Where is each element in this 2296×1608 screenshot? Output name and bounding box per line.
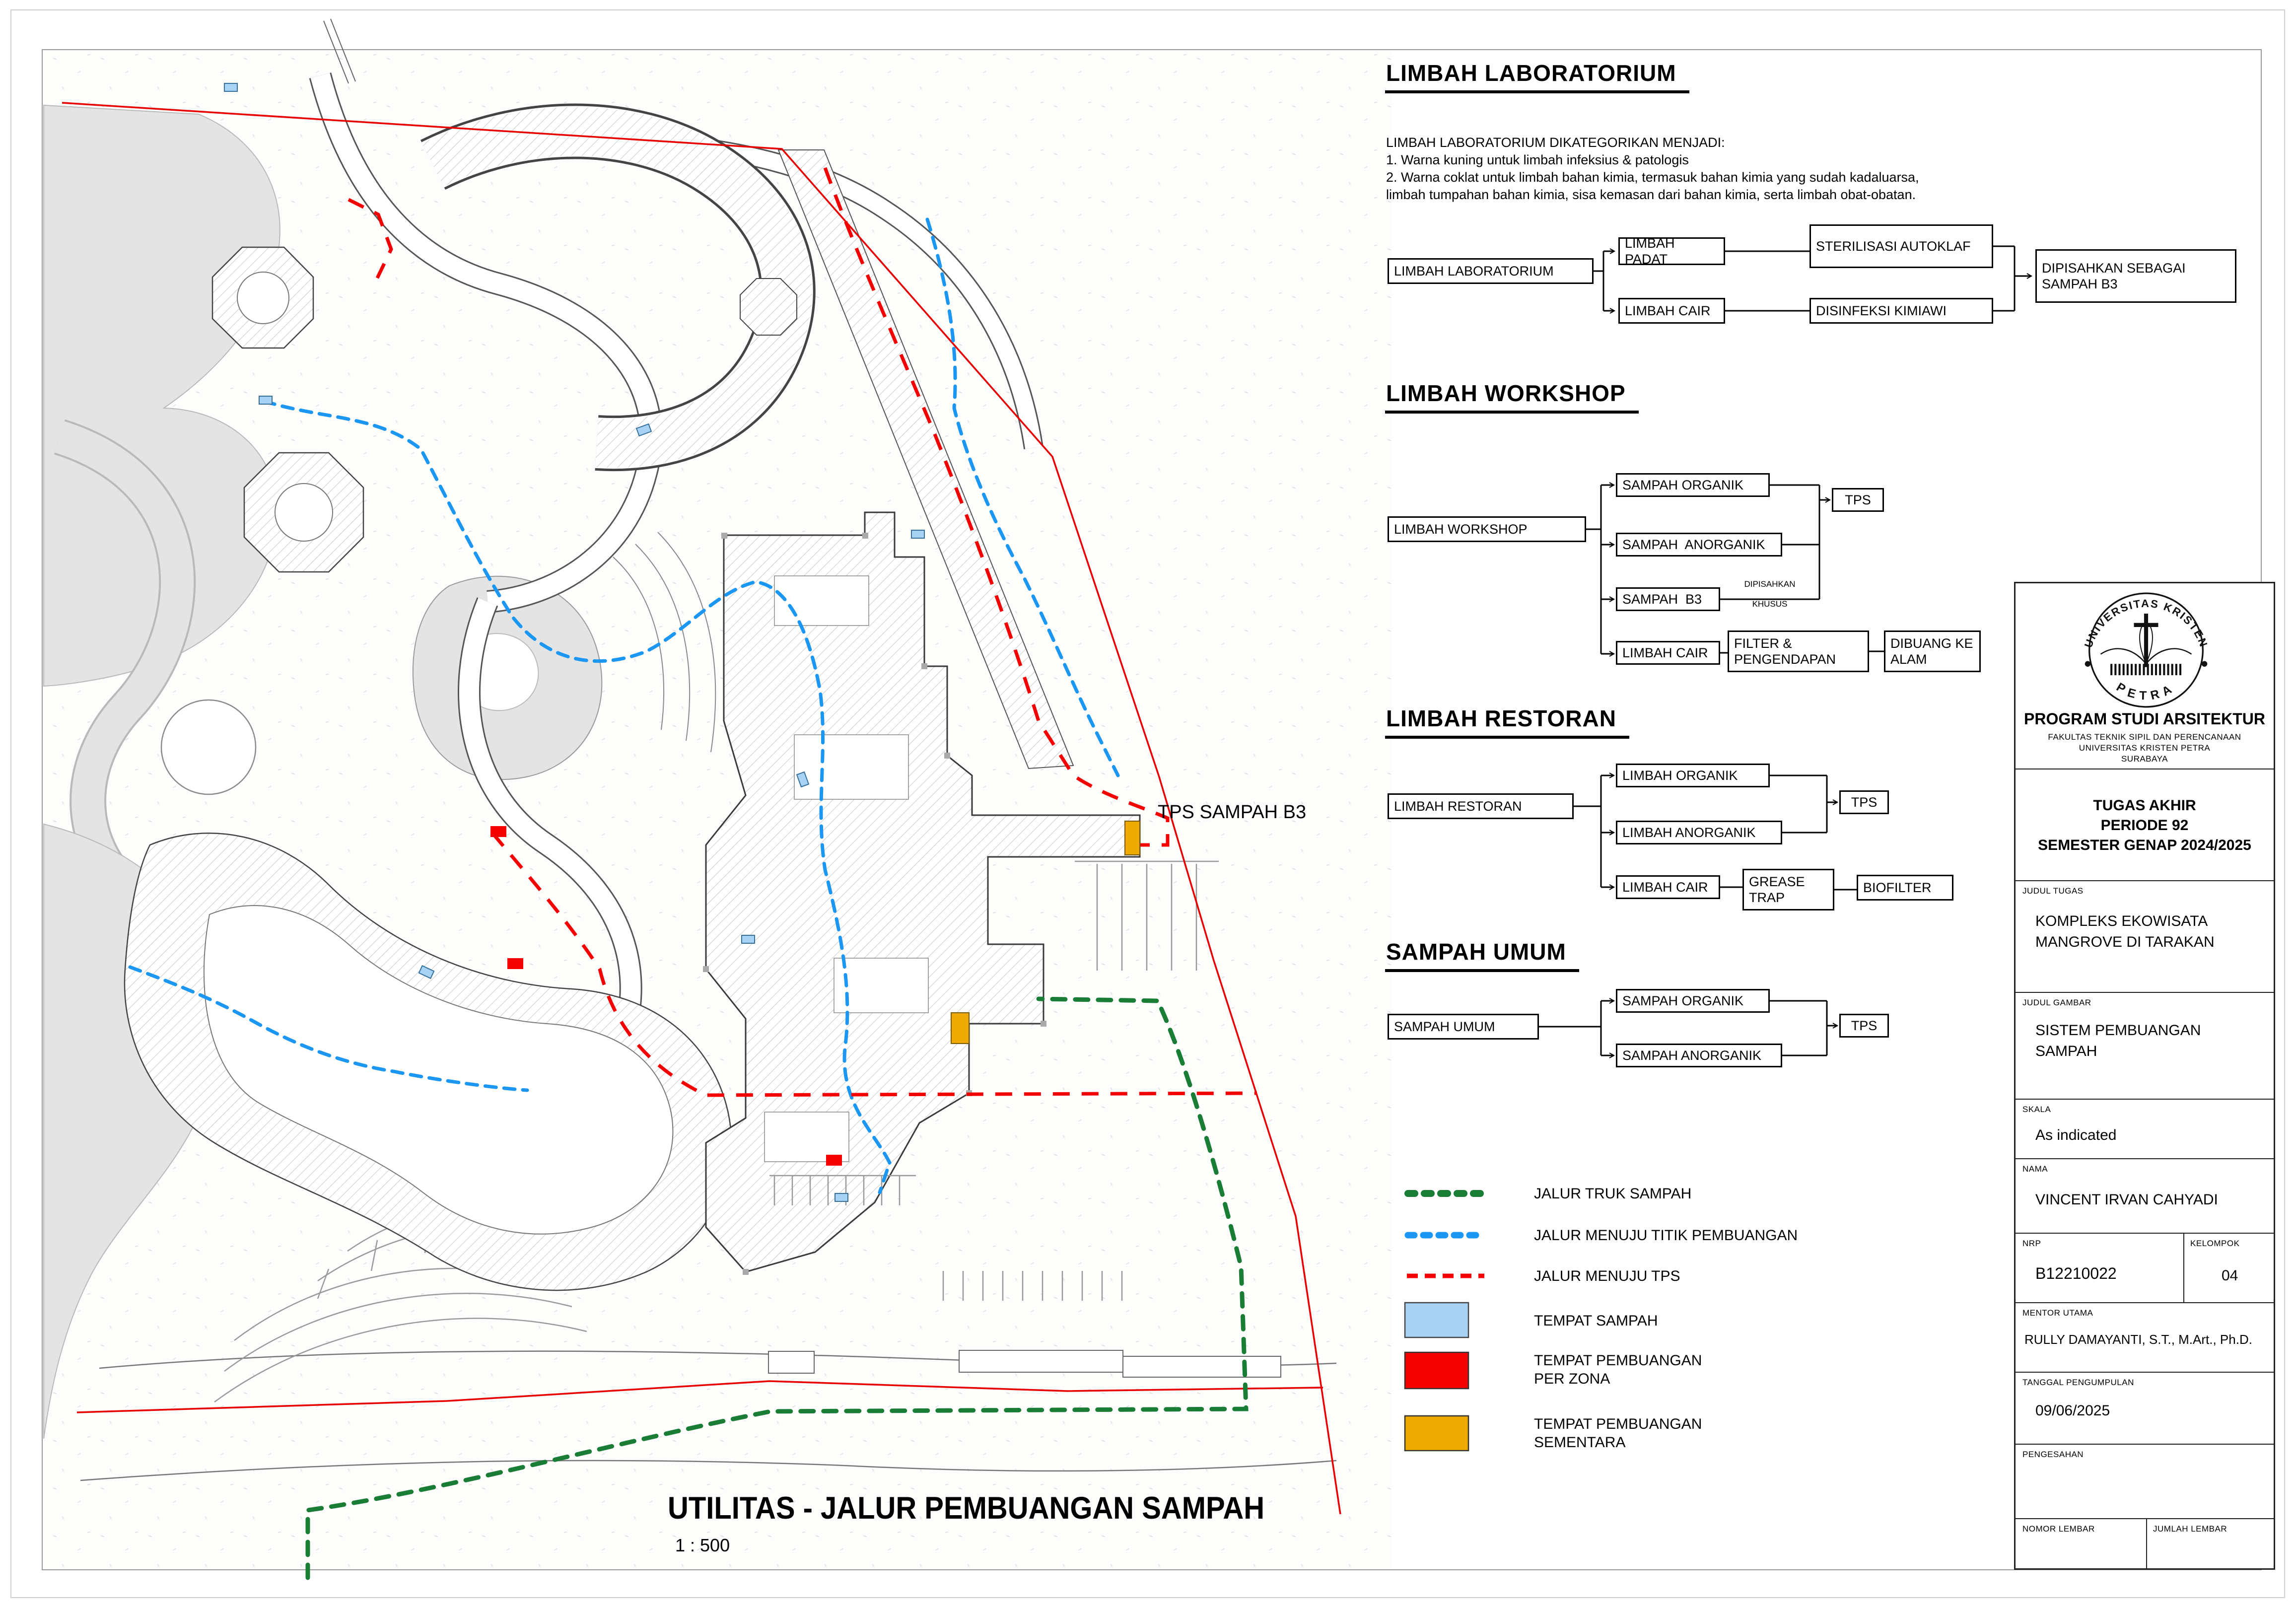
judul-tugas-label: JUDUL TUGAS bbox=[2022, 886, 2084, 896]
chart3-heading: LIMBAH RESTORAN bbox=[1385, 705, 1629, 739]
chart1-description: LIMBAH LABORATORIUM DIKATEGORIKAN MENJAD… bbox=[1386, 134, 2230, 204]
box-ws-tps: TPS bbox=[1832, 488, 1884, 512]
judul-gambar-label: JUDUL GAMBAR bbox=[2022, 998, 2091, 1008]
drawing-sheet: TPS SAMPAH B3 LIMBAH LABORATORIUM LIMBAH… bbox=[0, 0, 2296, 1608]
note-dipisahkan-khusus: DIPISAHKAN KHUSUS bbox=[1728, 574, 1812, 614]
chart2-heading: LIMBAH WORKSHOP bbox=[1385, 380, 1639, 414]
box-limbah-cair: LIMBAH CAIR bbox=[1618, 298, 1725, 324]
truck-route-swatch bbox=[1404, 1189, 1488, 1198]
project-title: TUGAS AKHIR PERIODE 92 SEMESTER GENAP 20… bbox=[2016, 796, 2274, 855]
per-zona-swatch bbox=[1404, 1351, 1470, 1390]
legend-label: JALUR MENUJU TPS bbox=[1534, 1267, 1857, 1285]
nrp-kelompok-divider bbox=[2183, 1233, 2184, 1302]
svg-text:PETRA: PETRA bbox=[2114, 681, 2178, 703]
judul-tugas-value: KOMPLEKS EKOWISATA MANGROVE DI TARAKAN bbox=[2035, 911, 2215, 953]
box-rs-limbah-organik: LIMBAH ORGANIK bbox=[1616, 764, 1770, 787]
box-limbah-padat: LIMBAH PADAT bbox=[1618, 237, 1725, 265]
chart4-heading: SAMPAH UMUM bbox=[1385, 938, 1579, 972]
titik-route-swatch bbox=[1404, 1230, 1488, 1240]
program-title: PROGRAM STUDI ARSITEKTUR bbox=[2016, 710, 2274, 728]
nrp-label: NRP bbox=[2022, 1239, 2041, 1249]
box-limbah-workshop: LIMBAH WORKSHOP bbox=[1388, 516, 1586, 542]
legend-label: TEMPAT PEMBUANGAN SEMENTARA bbox=[1534, 1415, 1857, 1452]
box-ws-sampah-b3: SAMPAH B3 bbox=[1616, 587, 1720, 611]
tempat-sampah-swatch bbox=[1404, 1302, 1470, 1339]
box-sterilisasi-autoklaf: STERILISASI AUTOKLAF bbox=[1809, 224, 1993, 268]
box-rs-limbah-anorganik: LIMBAH ANORGANIK bbox=[1616, 821, 1782, 844]
kelompok-value: 04 bbox=[2222, 1267, 2238, 1284]
petra-logo: UNIVERSITAS KRISTEN PETRA bbox=[2062, 589, 2230, 711]
box-grease-trap: GREASE TRAP bbox=[1742, 869, 1834, 910]
logo-bottom-text: PETRA bbox=[2114, 681, 2178, 703]
university-line: UNIVERSITAS KRISTEN PETRA bbox=[2016, 743, 2274, 753]
lembar-divider bbox=[2146, 1518, 2147, 1570]
city-line: SURABAYA bbox=[2016, 754, 2274, 764]
box-su-tps: TPS bbox=[1839, 1014, 1889, 1038]
jumlah-lembar-label: JUMLAH LEMBAR bbox=[2153, 1524, 2227, 1534]
nomor-lembar-label: NOMOR LEMBAR bbox=[2022, 1524, 2095, 1534]
mentor-value: RULLY DAMAYANTI, S.T., M.Art., Ph.D. bbox=[2024, 1332, 2252, 1347]
faculty-line: FAKULTAS TEKNIK SIPIL DAN PERENCANAAN bbox=[2016, 732, 2274, 742]
box-rs-limbah-cair: LIMBAH CAIR bbox=[1616, 875, 1720, 899]
round-plaza bbox=[161, 700, 256, 794]
sementara-swatch bbox=[1404, 1415, 1470, 1453]
tanggal-label: TANGGAL PENGUMPULAN bbox=[2022, 1378, 2134, 1388]
box-su-sampah-anorganik: SAMPAH ANORGANIK bbox=[1616, 1044, 1782, 1067]
box-filter-pengendapan: FILTER & PENGENDAPAN bbox=[1728, 630, 1869, 672]
legend-label: TEMPAT SAMPAH bbox=[1534, 1312, 1857, 1330]
nama-value: VINCENT IRVAN CAHYADI bbox=[2035, 1191, 2218, 1208]
nama-label: NAMA bbox=[2022, 1164, 2048, 1174]
box-ws-limbah-cair: LIMBAH CAIR bbox=[1616, 641, 1720, 665]
box-dibuang-ke-alam: DIBUANG KE ALAM bbox=[1884, 630, 1981, 672]
box-ws-sampah-anorganik: SAMPAH ANORGANIK bbox=[1616, 533, 1782, 557]
legend: JALUR TRUK SAMPAH JALUR MENUJU TITIK PEM… bbox=[1400, 1177, 1877, 1484]
mentor-label: MENTOR UTAMA bbox=[2022, 1308, 2093, 1318]
legend-label: JALUR MENUJU TITIK PEMBUANGAN bbox=[1534, 1226, 1857, 1245]
box-dipisahkan-b3: DIPISAHKAN SEBAGAI SAMPAH B3 bbox=[2035, 249, 2236, 303]
sheet-scale: 1 : 500 bbox=[675, 1535, 730, 1556]
kelompok-label: KELOMPOK bbox=[2190, 1239, 2239, 1249]
box-limbah-restoran: LIMBAH RESTORAN bbox=[1388, 793, 1574, 819]
box-ws-sampah-organik: SAMPAH ORGANIK bbox=[1616, 473, 1770, 497]
box-rs-tps: TPS bbox=[1839, 790, 1889, 814]
legend-label: JALUR TRUK SAMPAH bbox=[1534, 1185, 1857, 1203]
judul-gambar-value: SISTEM PEMBUANGAN SAMPAH bbox=[2035, 1020, 2201, 1062]
tps-label: TPS SAMPAH B3 bbox=[1158, 802, 1306, 823]
tanggal-value: 09/06/2025 bbox=[2035, 1402, 2110, 1419]
nrp-value: B12210022 bbox=[2035, 1264, 2117, 1283]
tps-route-swatch bbox=[1404, 1271, 1488, 1281]
box-sampah-umum: SAMPAH UMUM bbox=[1388, 1014, 1539, 1040]
chart1-heading: LIMBAH LABORATORIUM bbox=[1385, 60, 1689, 93]
legend-label: TEMPAT PEMBUANGAN PER ZONA bbox=[1534, 1351, 1857, 1388]
box-disinfeksi-kimiawi: DISINFEKSI KIMIAWI bbox=[1809, 298, 1993, 324]
title-block: UNIVERSITAS KRISTEN PETRA PROGRAM STUDI … bbox=[2014, 582, 2275, 1570]
skala-label: SKALA bbox=[2022, 1105, 2051, 1115]
pavilion-octagon-3 bbox=[740, 279, 797, 335]
sheet-title: UTILITAS - JALUR PEMBUANGAN SAMPAH bbox=[668, 1490, 1264, 1526]
box-su-sampah-organik: SAMPAH ORGANIK bbox=[1616, 989, 1770, 1013]
box-limbah-laboratorium: LIMBAH LABORATORIUM bbox=[1388, 258, 1594, 284]
pengesahan-label: PENGESAHAN bbox=[2022, 1450, 2084, 1460]
logo-cross-ship bbox=[2101, 614, 2192, 670]
box-biofilter: BIOFILTER bbox=[1857, 875, 1953, 901]
skala-value: As indicated bbox=[2035, 1127, 2116, 1144]
chart-limbah-laboratorium: LIMBAH LABORATORIUM LIMBAH LABORATORIUM … bbox=[1385, 60, 2259, 357]
